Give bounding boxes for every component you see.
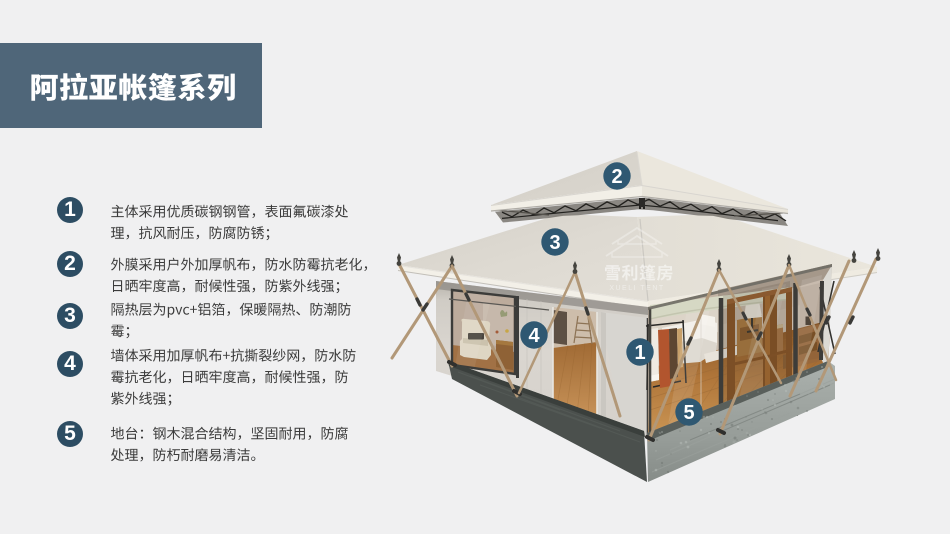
svg-text:3: 3 (549, 232, 560, 254)
svg-text:5: 5 (683, 402, 694, 424)
svg-text:1: 1 (634, 342, 645, 364)
svg-text:XUELI TENT: XUELI TENT (609, 285, 664, 292)
svg-text:4: 4 (528, 325, 540, 347)
svg-text:2: 2 (611, 166, 622, 188)
